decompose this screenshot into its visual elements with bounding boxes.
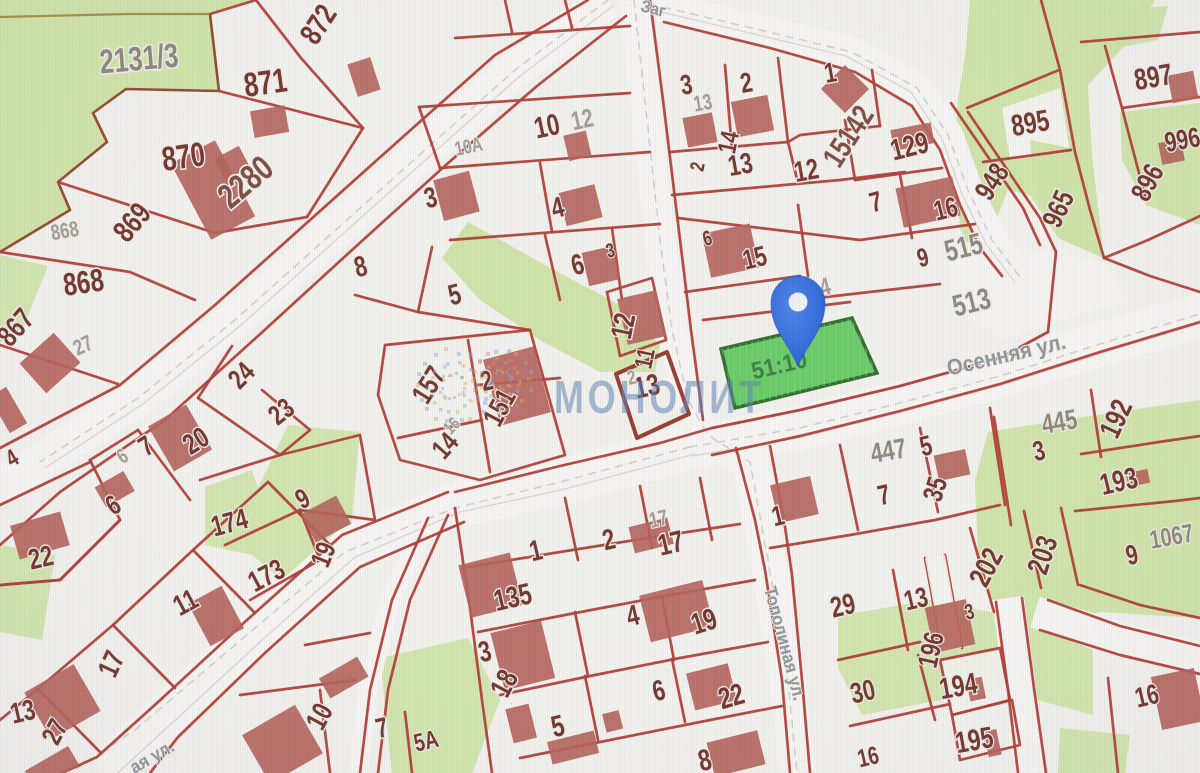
svg-text:195: 195 [953, 720, 996, 760]
svg-text:445: 445 [1039, 403, 1080, 440]
svg-text:868: 868 [49, 217, 81, 246]
svg-text:871: 871 [242, 62, 290, 105]
svg-text:2131/3: 2131/3 [98, 37, 180, 81]
svg-text:897: 897 [1132, 57, 1175, 97]
svg-text:447: 447 [868, 433, 908, 470]
svg-text:870: 870 [160, 136, 208, 179]
svg-text:895: 895 [1009, 103, 1052, 143]
svg-text:МОНОЛИТ: МОНОЛИТ [554, 372, 765, 423]
svg-text:996: 996 [1162, 122, 1200, 159]
svg-text:194: 194 [937, 666, 980, 706]
svg-text:868: 868 [61, 262, 106, 303]
